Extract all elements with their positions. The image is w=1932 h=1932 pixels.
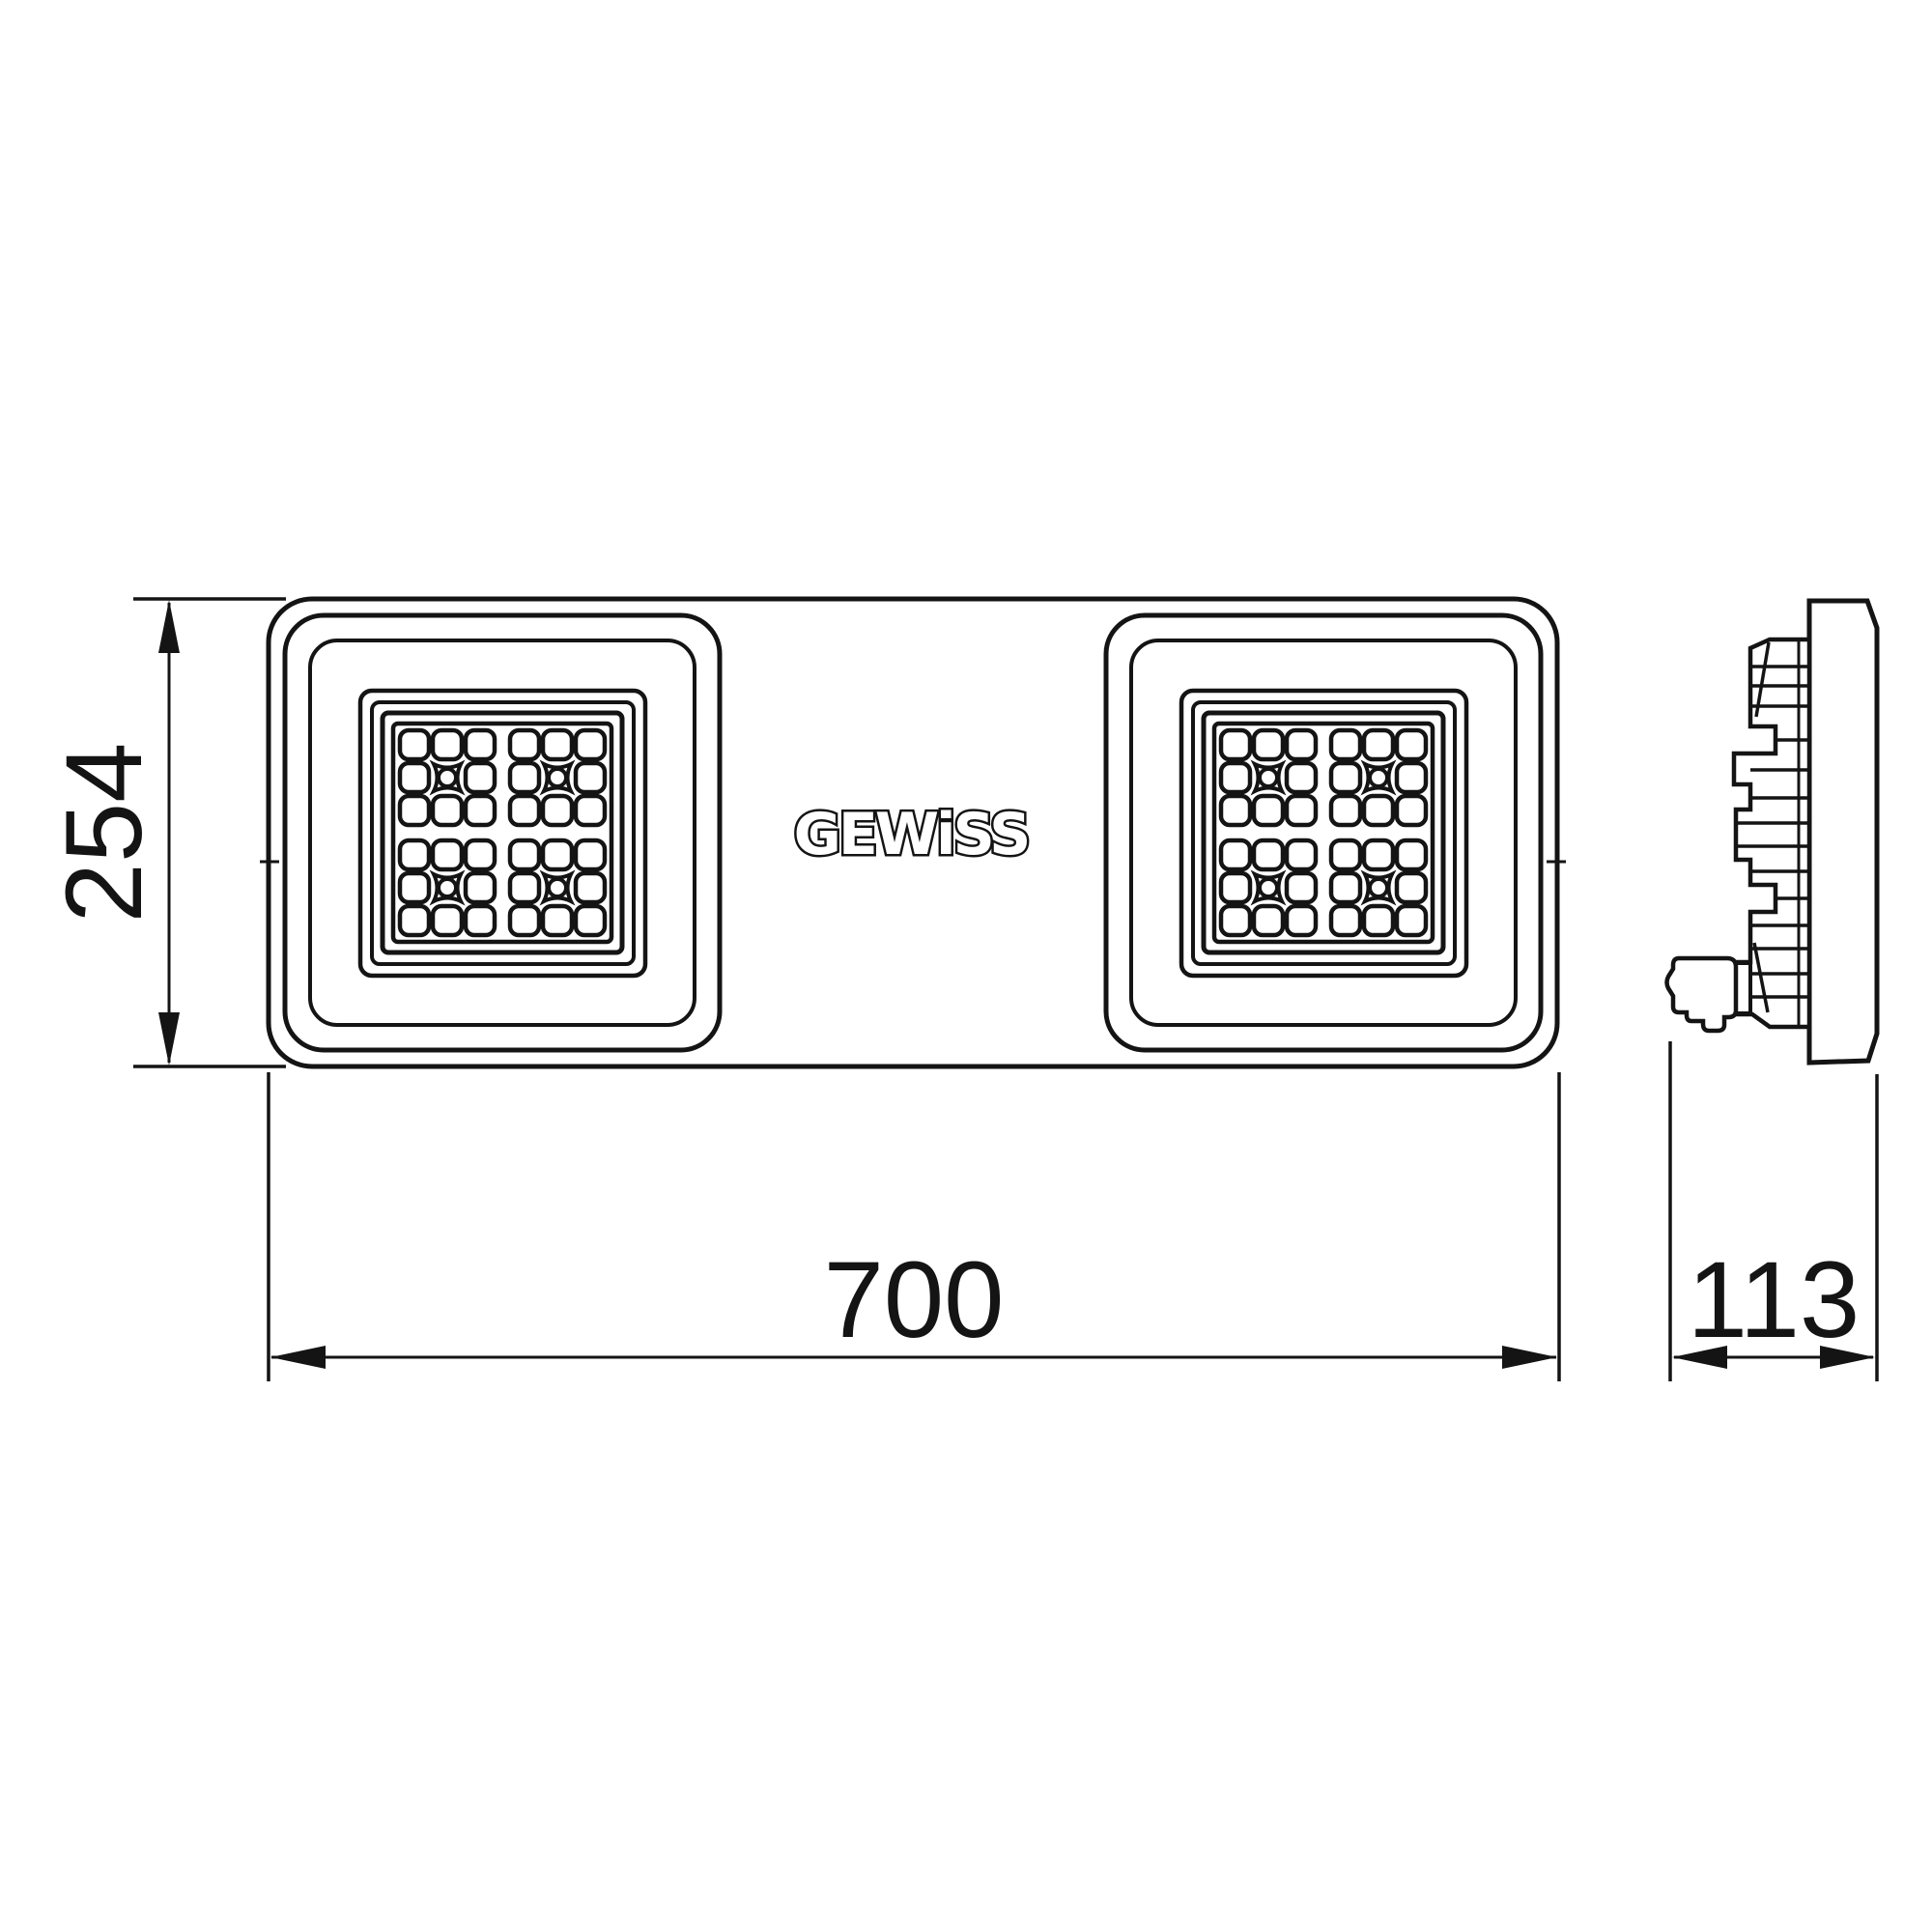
width-dimension-label: 700 [824,1239,1005,1360]
height-dimension-label: 254 [43,743,164,923]
cable-gland [1667,958,1737,1031]
drawing-page: GEWiSS [0,0,1932,1932]
technical-drawing: GEWiSS [0,0,1932,1932]
arrowhead-down [158,1012,180,1065]
led-module-left [285,615,720,1050]
front-view: GEWiSS [260,599,1566,1066]
brand-logo: GEWiSS [794,801,1029,868]
side-front-slab [1809,601,1877,1063]
arrowhead-up [158,600,180,653]
arrowhead-right [1502,1346,1557,1369]
arrowhead-left [270,1346,326,1369]
dimension-height: 254 [43,599,286,1066]
side-view [1667,601,1878,1063]
dimension-width: 700 [269,1072,1559,1381]
depth-dimension-label: 113 [1688,1239,1861,1360]
led-module-right [1106,615,1541,1050]
dimension-depth: 113 [1670,1041,1877,1381]
